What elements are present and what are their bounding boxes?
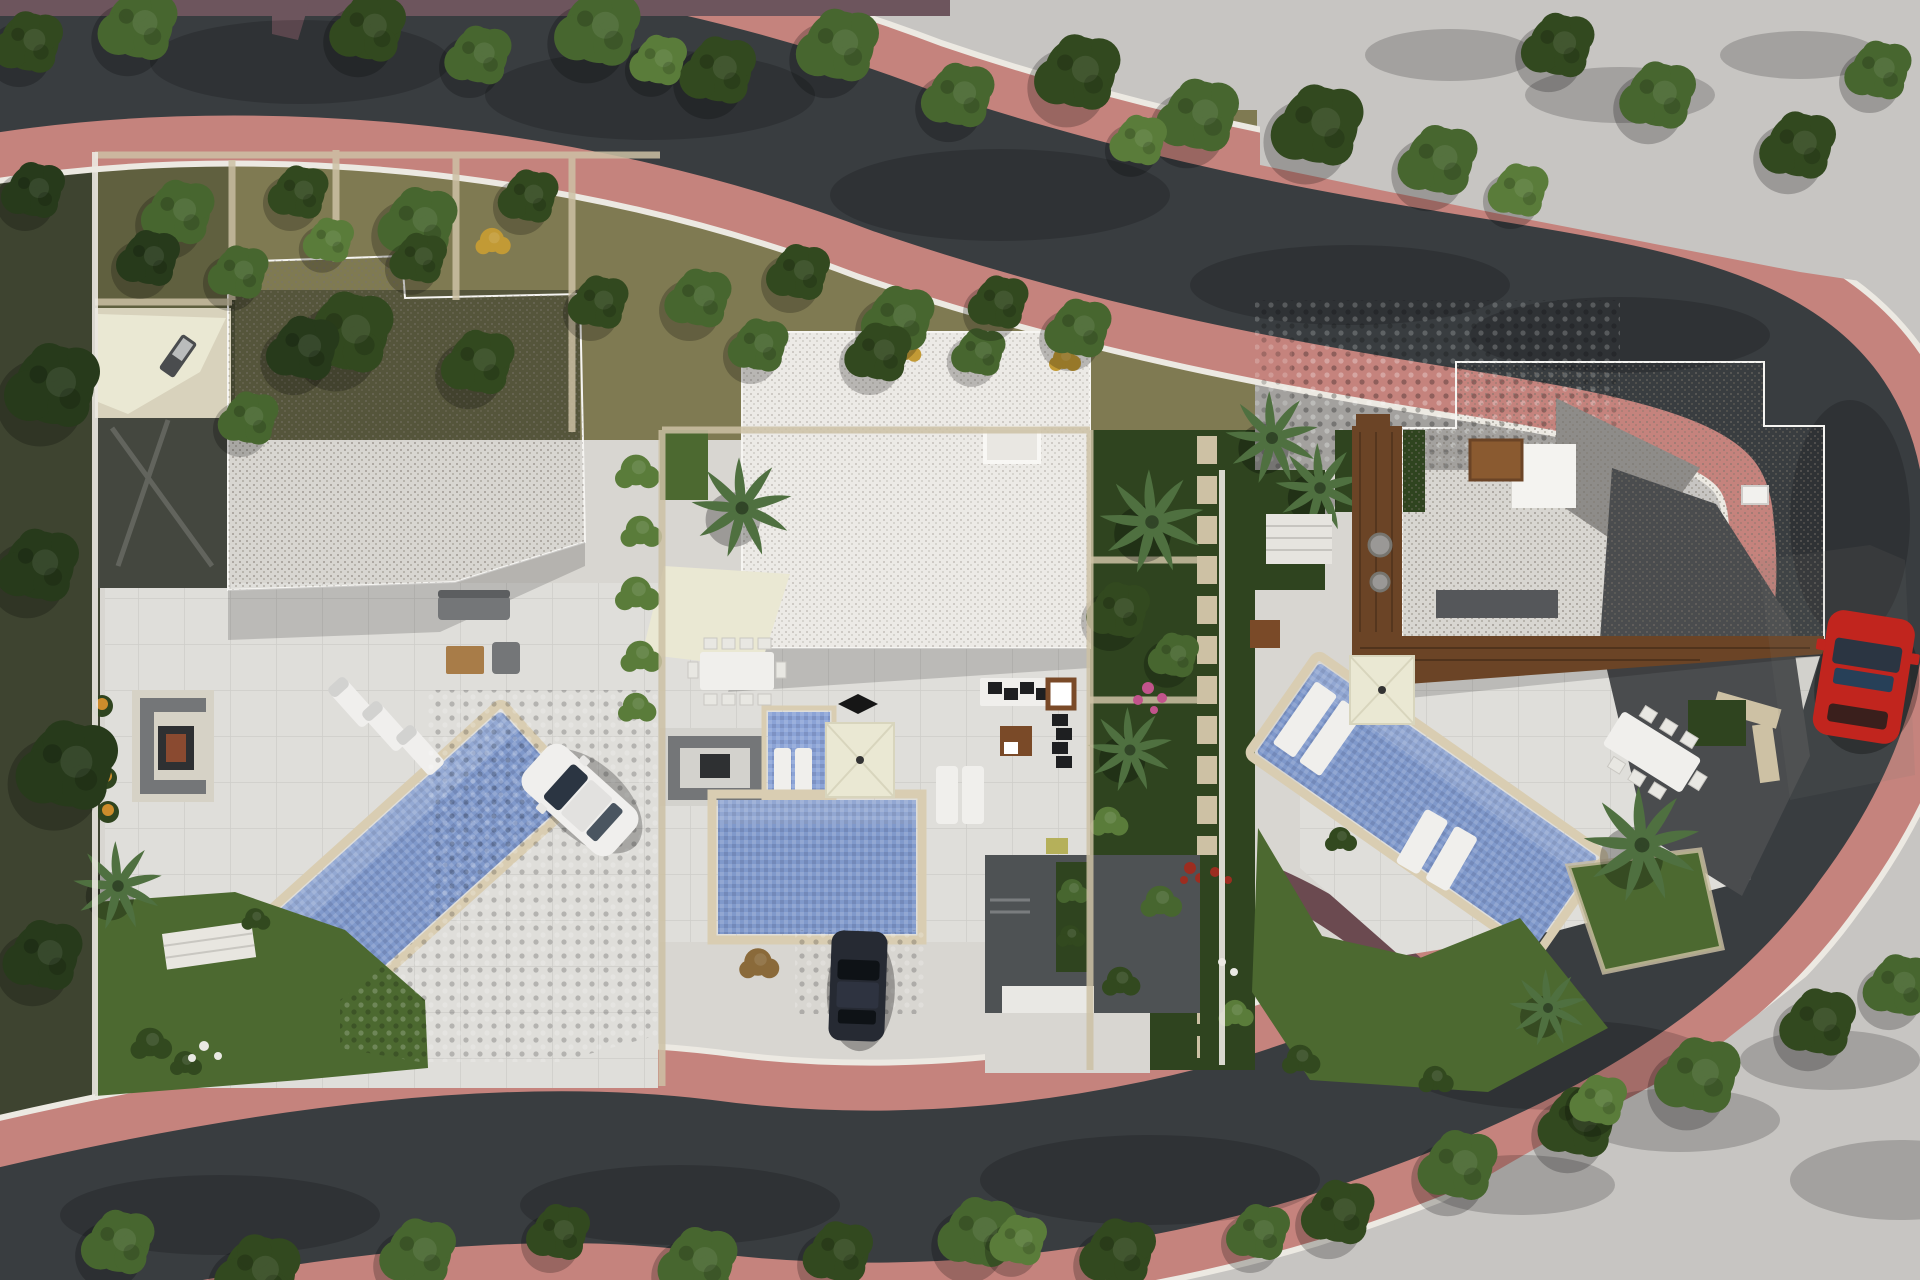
villa2-pool	[712, 794, 922, 940]
spa-lounger	[795, 748, 812, 794]
villa1-fire-lounge	[132, 690, 214, 802]
villa2-garage-door	[1002, 986, 1094, 1013]
villa3-entry-steps	[1266, 514, 1332, 564]
villa1-coffee-table	[446, 646, 484, 674]
villa2-frame-table	[1048, 680, 1074, 708]
villa2-lounger	[962, 766, 984, 824]
villa3-round-table	[1369, 534, 1391, 556]
villa2-lounger	[936, 766, 958, 824]
siteplan-render	[0, 0, 1920, 1280]
villa3-roof-vent	[1742, 486, 1768, 504]
villa3-wood-side-table	[1250, 620, 1280, 648]
villa2-lawn-patch	[660, 430, 708, 500]
villa2-dining-table	[700, 652, 774, 690]
villa2-spa	[764, 708, 834, 800]
villa3-round-table	[1371, 573, 1389, 591]
villa3-outdoor-kitchen	[1470, 440, 1522, 480]
villa3-parasol	[1350, 656, 1414, 724]
villa3-roof-void	[1436, 590, 1558, 618]
spa-lounger	[774, 748, 791, 794]
neighbor-garden	[0, 140, 100, 1220]
villa1-armchair	[492, 642, 520, 674]
villa2-mat	[1046, 838, 1068, 854]
villa2-rear-plots	[1200, 855, 1255, 1070]
siteplan-canvas	[0, 0, 1920, 1280]
villa2-fire-table	[700, 754, 730, 778]
